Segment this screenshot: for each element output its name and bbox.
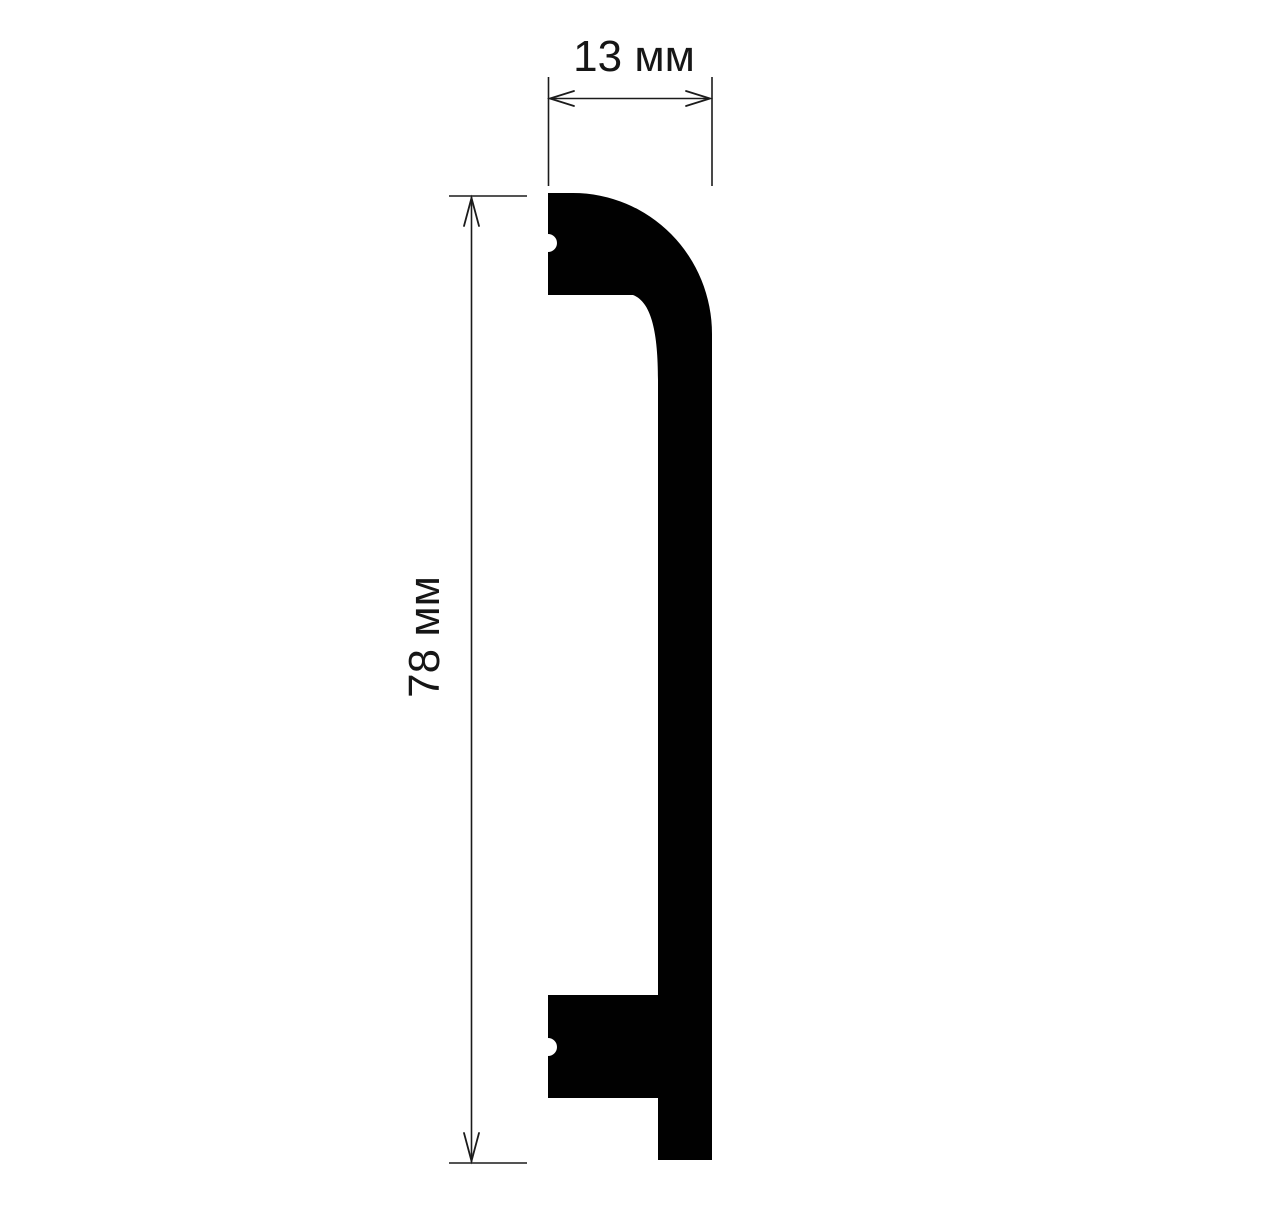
- height-dimension: 78 мм: [400, 196, 527, 1163]
- drawing-canvas: 13 мм 78 мм: [0, 0, 1280, 1221]
- profile-dimension-drawing: 13 мм 78 мм: [0, 0, 1280, 1221]
- width-dimension-label: 13 мм: [573, 32, 695, 81]
- width-dimension: 13 мм: [549, 32, 713, 186]
- height-dimension-label: 78 мм: [400, 576, 449, 698]
- profile-cross-section-shape: [548, 193, 712, 1160]
